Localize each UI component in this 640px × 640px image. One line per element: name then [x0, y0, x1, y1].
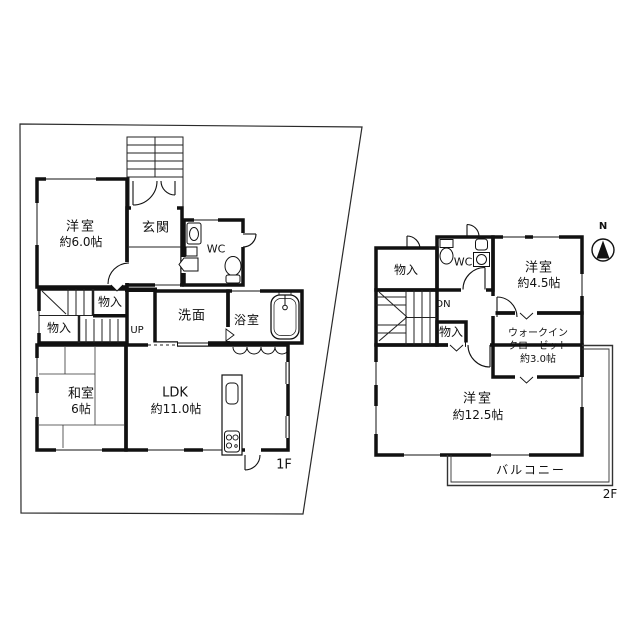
- toilet-1f: [225, 257, 241, 276]
- kitchen-sink: [226, 383, 238, 404]
- wc2-door-arc: [463, 268, 485, 290]
- room-label-bath: 浴室: [234, 314, 260, 326]
- room-size-yoshitsu125: 約12.5帖: [453, 409, 504, 421]
- floor2-label: 2F: [603, 488, 618, 500]
- bathtub: [271, 291, 299, 339]
- kitchen-counter: [222, 375, 242, 455]
- room-label-senmen: 洗面: [178, 310, 206, 323]
- room-label-wc-2f: WC: [454, 257, 473, 268]
- room-ldk: [126, 345, 288, 450]
- room-label-yoshitsu45: 洋室: [525, 262, 553, 275]
- kitchen-stove: [225, 431, 240, 452]
- room-size-yoshitsu45: 約4.5帖: [517, 277, 560, 289]
- stairs-2f: [376, 290, 437, 345]
- yoshitsu125-door-arc: [468, 345, 490, 367]
- stairs-up-label: UP: [130, 326, 143, 336]
- wc2-basin: [476, 239, 488, 250]
- floor1-label: 1F: [276, 459, 292, 472]
- room-label-wic-line2: クローゼット: [508, 342, 568, 352]
- toilet-2f: [440, 248, 453, 264]
- wall-hall-top: [125, 288, 157, 293]
- room-size-wic: 約3.0帖: [520, 355, 556, 365]
- room-size-washitsu: 6帖: [71, 403, 91, 415]
- room-label-yoshitsu125: 洋室: [463, 393, 493, 406]
- toilet-tank-2f: [440, 240, 453, 248]
- entrance-door-arc: [133, 181, 157, 205]
- floor-plan: 洋室 約6.0帖 玄関 WC 物入 物入 UP 洗面 浴室 和室 6帖 LDK …: [0, 0, 640, 640]
- room-label-wic-line1: ウォークイン: [508, 329, 568, 339]
- room-label-wc-1f: WC: [207, 244, 226, 255]
- room-label-monoire-lower: 物入: [47, 322, 71, 334]
- room-size-ldk: 約11.0帖: [151, 403, 202, 415]
- room-label-monoire-upper: 物入: [98, 296, 122, 308]
- wc2-top-arc: [467, 225, 479, 237]
- entrance-steps: [127, 137, 183, 207]
- room-label-monoire-top: 物入: [394, 264, 418, 276]
- wc-cabinet: [186, 247, 197, 256]
- compass-icon: [592, 239, 614, 261]
- room-label-monoire-mid: 物入: [439, 326, 463, 338]
- room-size-yoshitsu6: 約6.0帖: [59, 236, 102, 248]
- kitchen-door-arc: [245, 455, 260, 470]
- room-label-genkan: 玄関: [142, 222, 170, 235]
- room-label-washitsu: 和室: [68, 388, 94, 401]
- room-label-ldk: LDK: [162, 387, 188, 400]
- floor-plan-drawing: [0, 0, 640, 640]
- compass-north-label: N: [599, 222, 607, 232]
- folding-door-scallops: [233, 347, 289, 354]
- room-label-yoshitsu6: 洋室: [66, 221, 96, 234]
- balcony-label: バルコニー: [496, 464, 566, 476]
- stairs-down-label: DN: [435, 300, 450, 310]
